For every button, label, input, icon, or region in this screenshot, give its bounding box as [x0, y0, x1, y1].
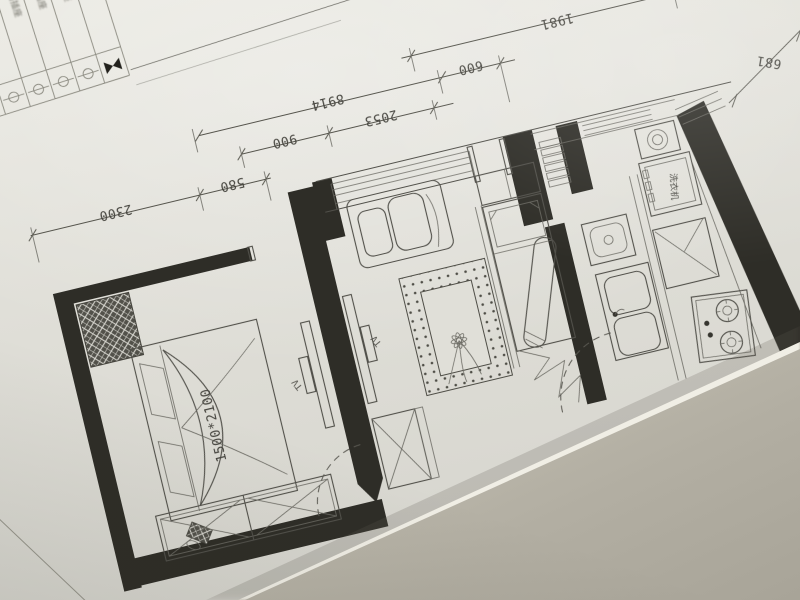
pillow — [140, 359, 176, 424]
legend-table: 单相二极插座 单相三极插座 空调专用插座 厨房防溅插座 电视网络插座 — [0, 0, 130, 122]
washbasin — [581, 214, 636, 266]
bedroom-top-wall — [61, 247, 253, 306]
dim-580: 580 — [218, 174, 246, 194]
washing-machine-label: 洗衣机 — [667, 173, 681, 201]
dim-2053: 2053 — [363, 106, 399, 128]
outlet-symbol — [27, 81, 51, 97]
legend-label: 厨房防溅插座 — [23, 0, 49, 11]
dim-900: 900 — [270, 130, 298, 150]
water-heater — [635, 120, 681, 159]
dim-8914: 8914 — [309, 90, 345, 112]
burner — [719, 330, 744, 355]
dim-1981: 1981 — [539, 9, 575, 31]
fridge — [653, 218, 720, 289]
washing-machine: 洗衣机 — [639, 152, 702, 217]
dim-681: 681 — [755, 52, 782, 71]
dim-600: 600 — [456, 57, 484, 77]
balcony-window — [331, 151, 475, 209]
tv-label-bedroom: TV — [290, 376, 305, 391]
outlet-symbol — [76, 66, 100, 82]
legend-labels: 单相二极插座 单相三极插座 空调专用插座 厨房防溅插座 电视网络插座 — [0, 0, 73, 35]
pillow — [158, 436, 194, 501]
bath-top-wall — [556, 121, 594, 194]
bed-size-label: 1500*2100 — [198, 387, 230, 463]
rug — [399, 258, 513, 395]
sheet-frame-line — [126, 0, 366, 70]
floor-plan-photo: 单相二极插座 单相三极插座 空调专用插座 厨房防溅插座 电视网络插座 1981 … — [0, 0, 800, 600]
outlet-symbol — [2, 89, 26, 105]
legend-symbols — [0, 58, 122, 114]
burner — [715, 298, 740, 323]
sofa — [345, 179, 455, 269]
kitchen-right-wall — [675, 89, 800, 364]
sheet-frame-line2 — [133, 20, 345, 85]
double-sink — [595, 262, 668, 360]
dimension-lines: 1981 8914 600 900 2053 2300 580 681 — [6, 0, 800, 274]
outlet-symbol — [51, 73, 75, 89]
dim-2300: 2300 — [97, 201, 133, 223]
bath-kitchen-wall — [629, 174, 686, 380]
bedroom-bed: 1500*2100 — [130, 319, 297, 520]
legend-label: 空调专用插座 — [0, 0, 24, 19]
bowtie-symbol — [103, 58, 122, 74]
